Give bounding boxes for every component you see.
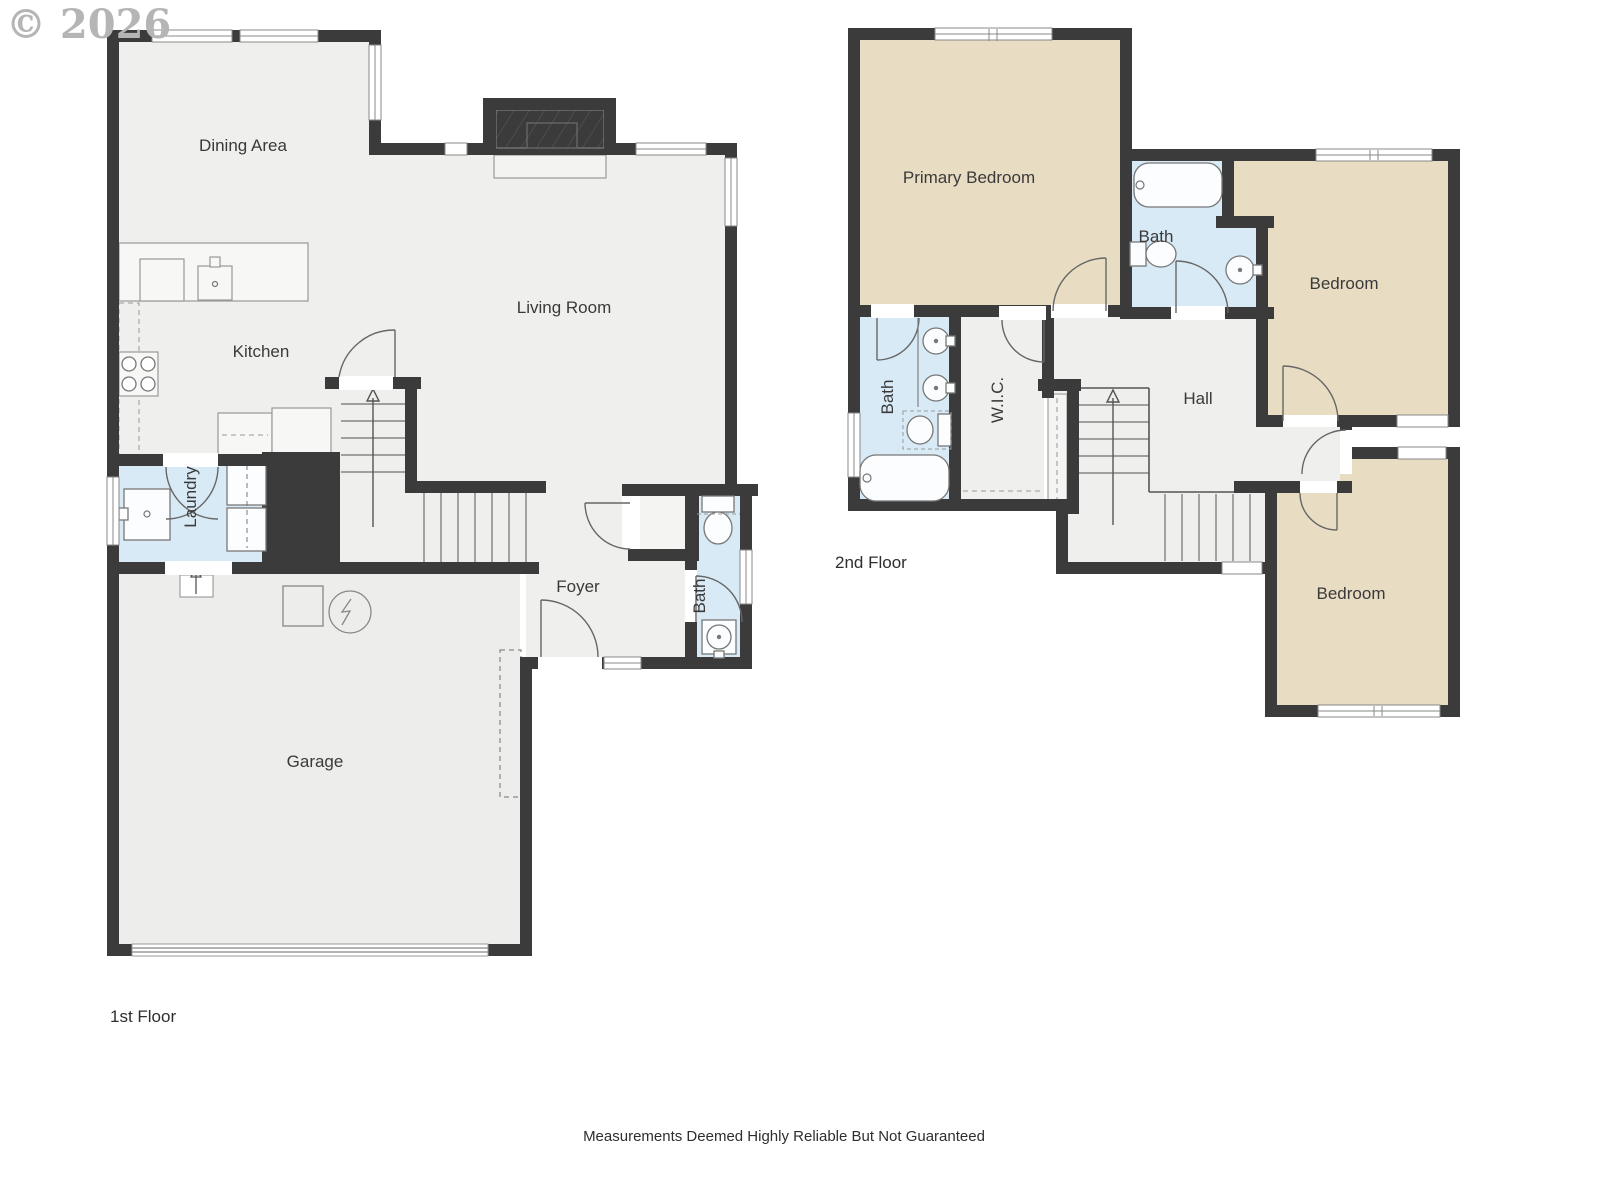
tub-icon	[1134, 163, 1222, 207]
floor-label-2nd: 2nd Floor	[835, 553, 907, 572]
bedroom-bottom-floor	[1277, 459, 1448, 705]
room-label-hall: Hall	[1183, 389, 1212, 408]
room-label-foyer: Foyer	[556, 577, 600, 596]
room-label-dining: Dining Area	[199, 136, 287, 155]
refrigerator-icon	[140, 259, 184, 301]
floorplan-page: Dining Area Kitchen Living Room Laundry …	[0, 0, 1600, 1200]
toilet-tank-icon	[702, 496, 734, 512]
tub-icon	[860, 455, 949, 501]
room-label-bedroom-top: Bedroom	[1310, 274, 1379, 293]
fireplace-icon	[496, 110, 604, 148]
room-label-wic: W.I.C.	[988, 377, 1007, 423]
copyright-watermark: © 2026	[6, 1, 171, 48]
room-label-kitchen: Kitchen	[233, 342, 290, 361]
stove-icon	[119, 352, 158, 396]
second-floor-plan: Primary Bedroom Bath Bedroom Bath W.I.C.…	[835, 28, 1454, 717]
toilet-tank-icon	[938, 414, 951, 446]
exterior-notch	[1352, 427, 1448, 447]
room-label-living: Living Room	[517, 298, 612, 317]
garage-door	[132, 944, 488, 956]
kitchen-sink-icon	[198, 266, 232, 300]
utility-sink-icon	[124, 489, 170, 540]
floor-plan-canvas: Dining Area Kitchen Living Room Laundry …	[0, 0, 1600, 1200]
room-label-primary: Primary Bedroom	[903, 168, 1035, 187]
room-label-bath-primary: Bath	[878, 380, 897, 415]
floor-label-1st: 1st Floor	[110, 1007, 176, 1026]
hearth	[494, 155, 606, 178]
footer-disclaimer: Measurements Deemed Highly Reliable But …	[583, 1128, 985, 1145]
room-label-bedroom-bottom: Bedroom	[1317, 584, 1386, 603]
room-label-bath-1f: Bath	[690, 579, 709, 614]
hall-closet-nook	[1048, 394, 1067, 505]
toilet-bowl-icon	[907, 416, 933, 444]
toilet-bowl-icon	[704, 512, 732, 544]
room-label-garage: Garage	[287, 752, 344, 771]
first-floor-plan: Dining Area Kitchen Living Room Laundry …	[107, 30, 752, 1026]
room-label-bath-hall: Bath	[1139, 227, 1174, 246]
room-label-laundry: Laundry	[181, 466, 200, 528]
